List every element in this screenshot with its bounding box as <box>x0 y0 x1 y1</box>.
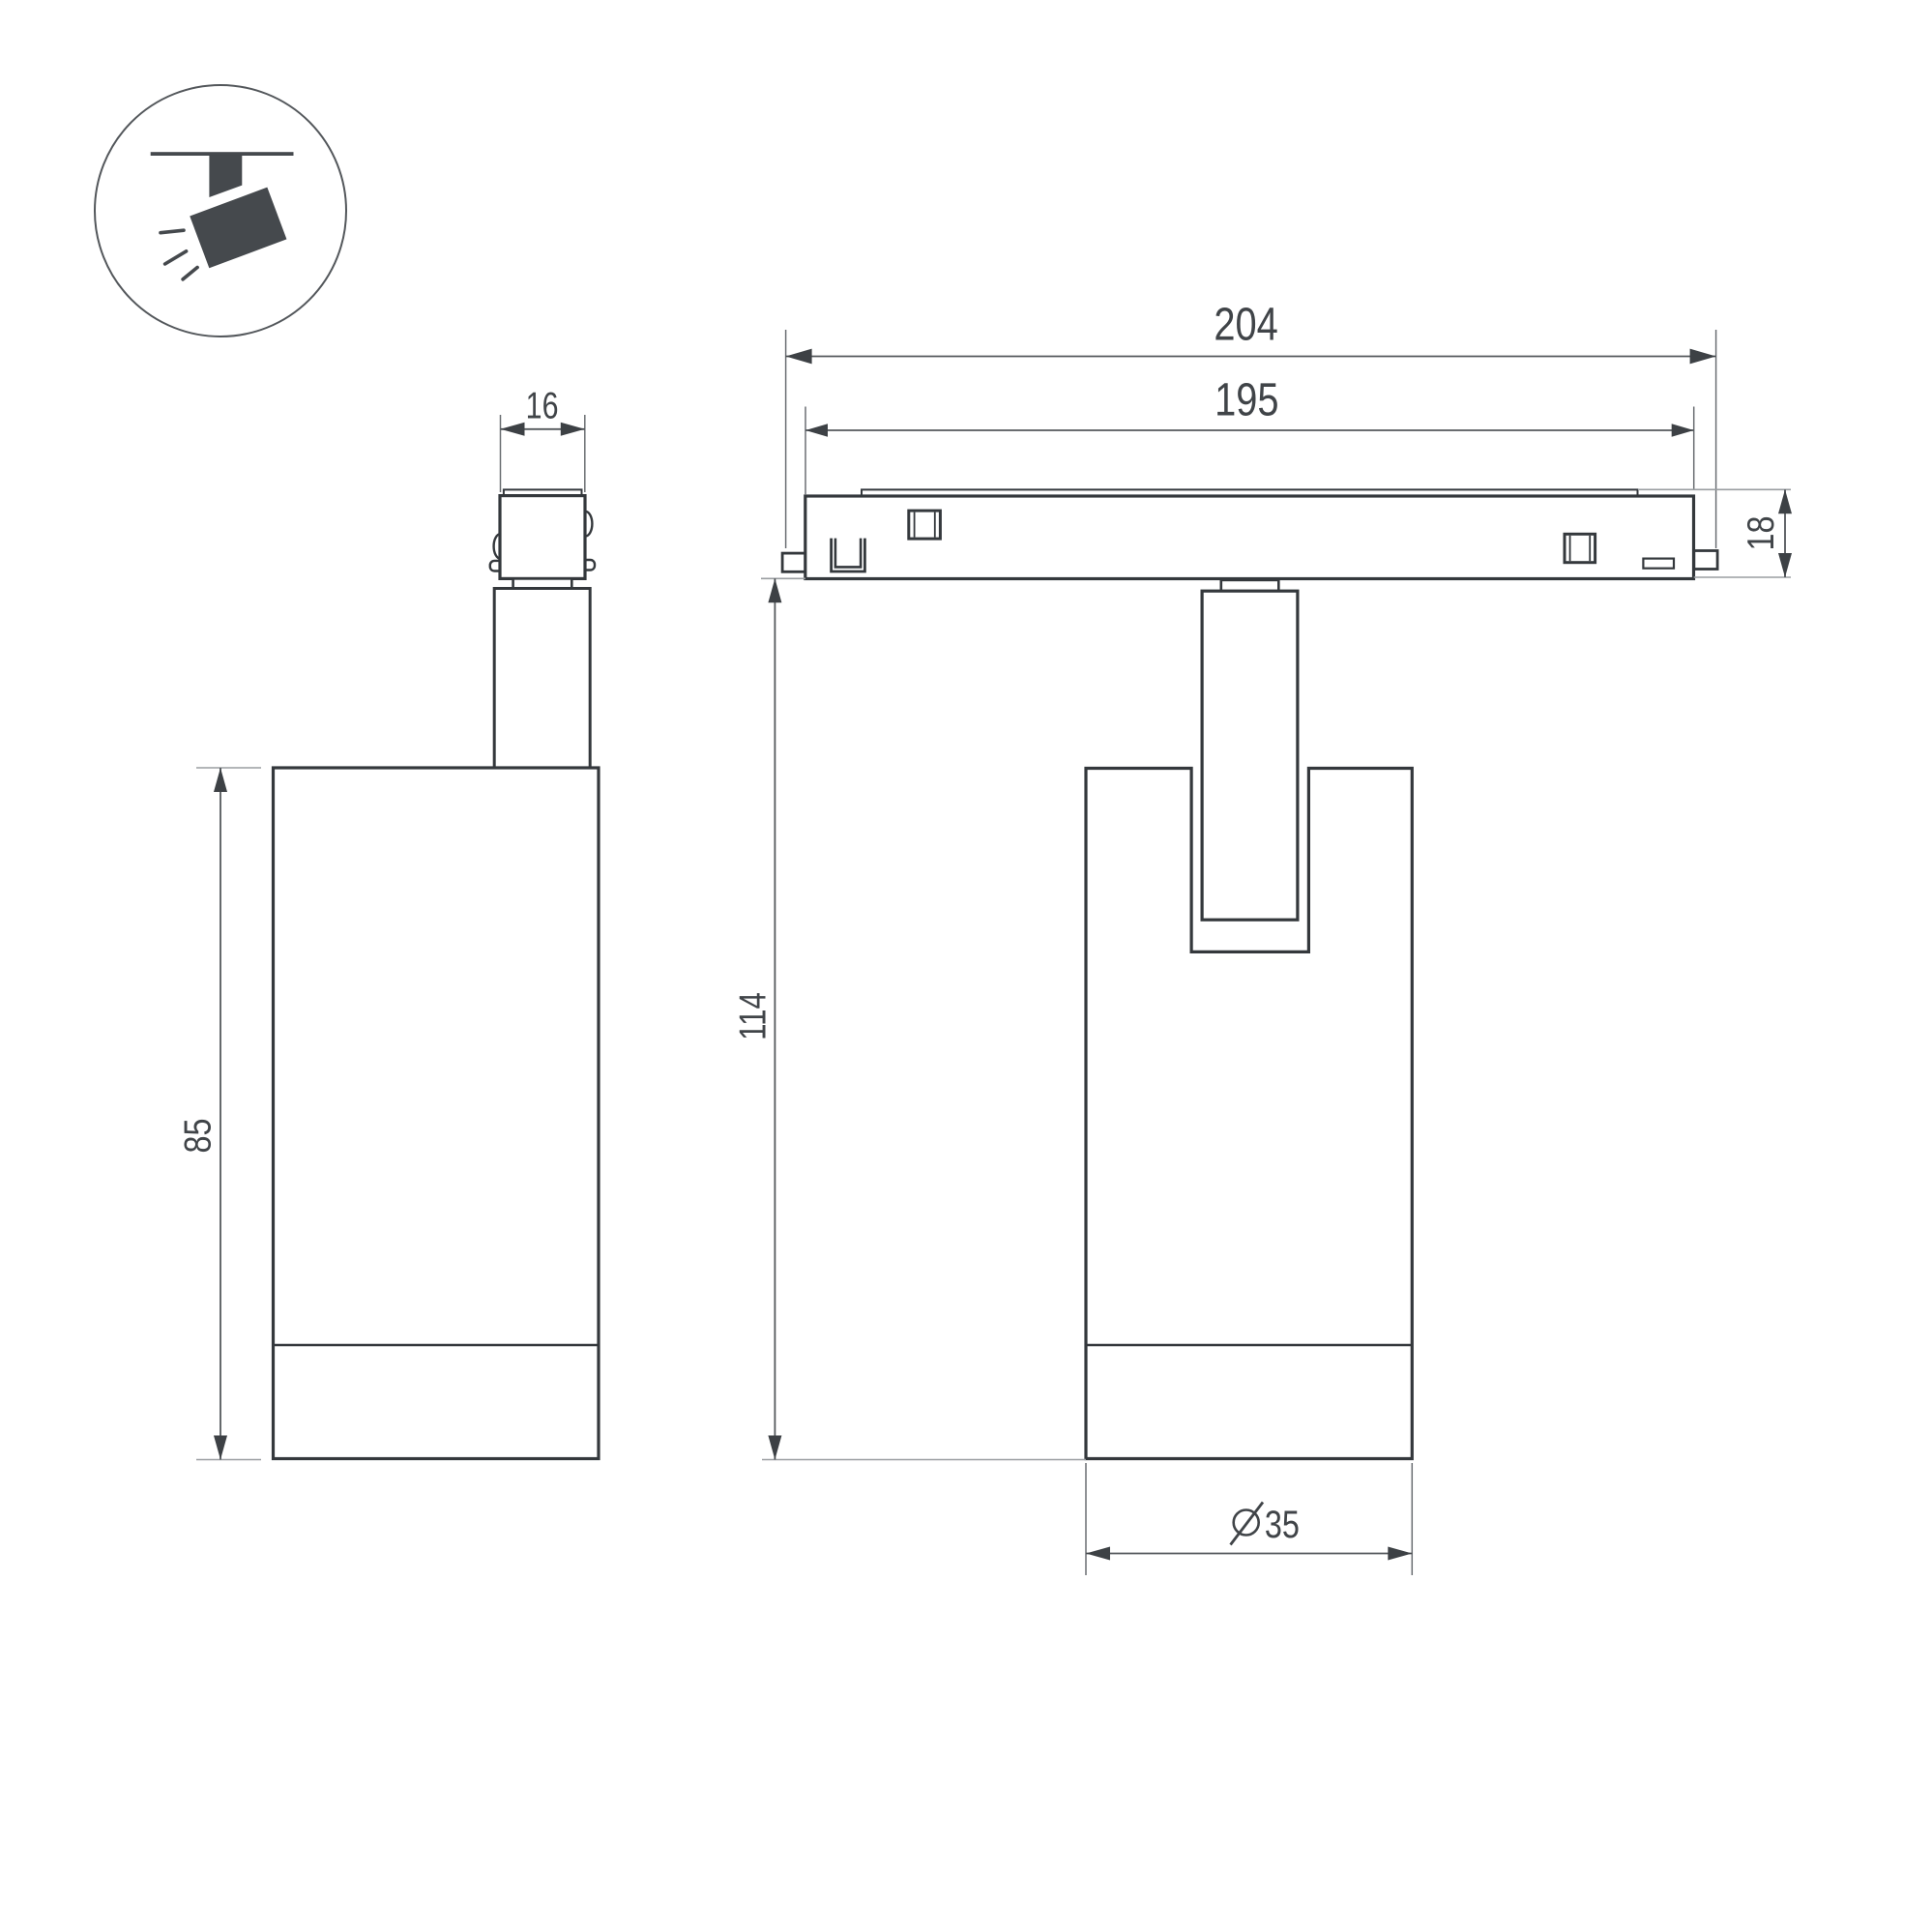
svg-text:16: 16 <box>526 385 559 426</box>
svg-text:204: 204 <box>1214 299 1277 350</box>
svg-text:195: 195 <box>1215 374 1278 425</box>
svg-text:18: 18 <box>1740 515 1782 550</box>
svg-text:85: 85 <box>177 1118 220 1153</box>
svg-text:114: 114 <box>732 992 774 1040</box>
svg-text:35: 35 <box>1265 1503 1300 1546</box>
